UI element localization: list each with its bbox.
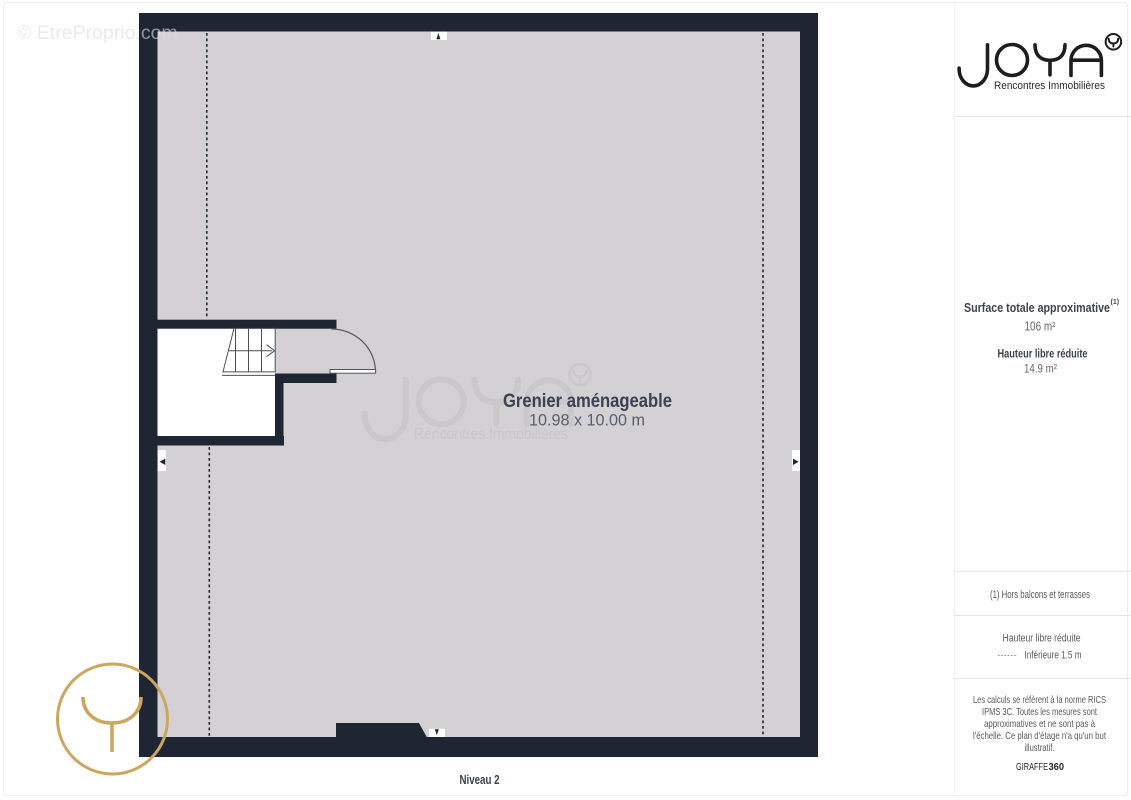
svg-text:14.9 m²: 14.9 m² [1024, 362, 1057, 376]
svg-text:© EtreProprio.com: © EtreProprio.com [17, 22, 178, 44]
svg-text:GIRAFFE: GIRAFFE [1016, 762, 1048, 773]
svg-text:Hauteur libre réduite: Hauteur libre réduite [998, 349, 1088, 361]
svg-text:approximatives et ne sont pas: approximatives et ne sont pas à [984, 718, 1095, 730]
svg-text:illustratif.: illustratif. [1025, 742, 1055, 754]
svg-text:Inférieure 1.5 m: Inférieure 1.5 m [1025, 650, 1082, 662]
svg-text:(1): (1) [1111, 299, 1120, 306]
svg-text:106 m²: 106 m² [1025, 320, 1056, 334]
svg-text:Surface totale approximative: Surface totale approximative [964, 300, 1110, 315]
svg-text:360: 360 [1049, 761, 1065, 773]
svg-text:Grenier aménageable: Grenier aménageable [503, 390, 672, 412]
svg-text:Les calculs se réfèrent à la n: Les calculs se réfèrent à la norme RICS [973, 694, 1106, 706]
svg-text:Niveau 2: Niveau 2 [460, 773, 500, 787]
svg-text:(1) Hors balcons et terrasses: (1) Hors balcons et terrasses [990, 589, 1090, 601]
svg-text:Hauteur libre réduite: Hauteur libre réduite [1003, 633, 1081, 645]
svg-text:l'échelle. Ce plan d'étage n'a: l'échelle. Ce plan d'étage n'a qu'un but [973, 730, 1106, 742]
svg-text:IPMS 3C. Toutes les mesures so: IPMS 3C. Toutes les mesures sont [982, 706, 1097, 718]
svg-text:10.98 x 10.00 m: 10.98 x 10.00 m [529, 411, 645, 430]
svg-text:Rencontres Immobilières: Rencontres Immobilières [994, 80, 1105, 92]
